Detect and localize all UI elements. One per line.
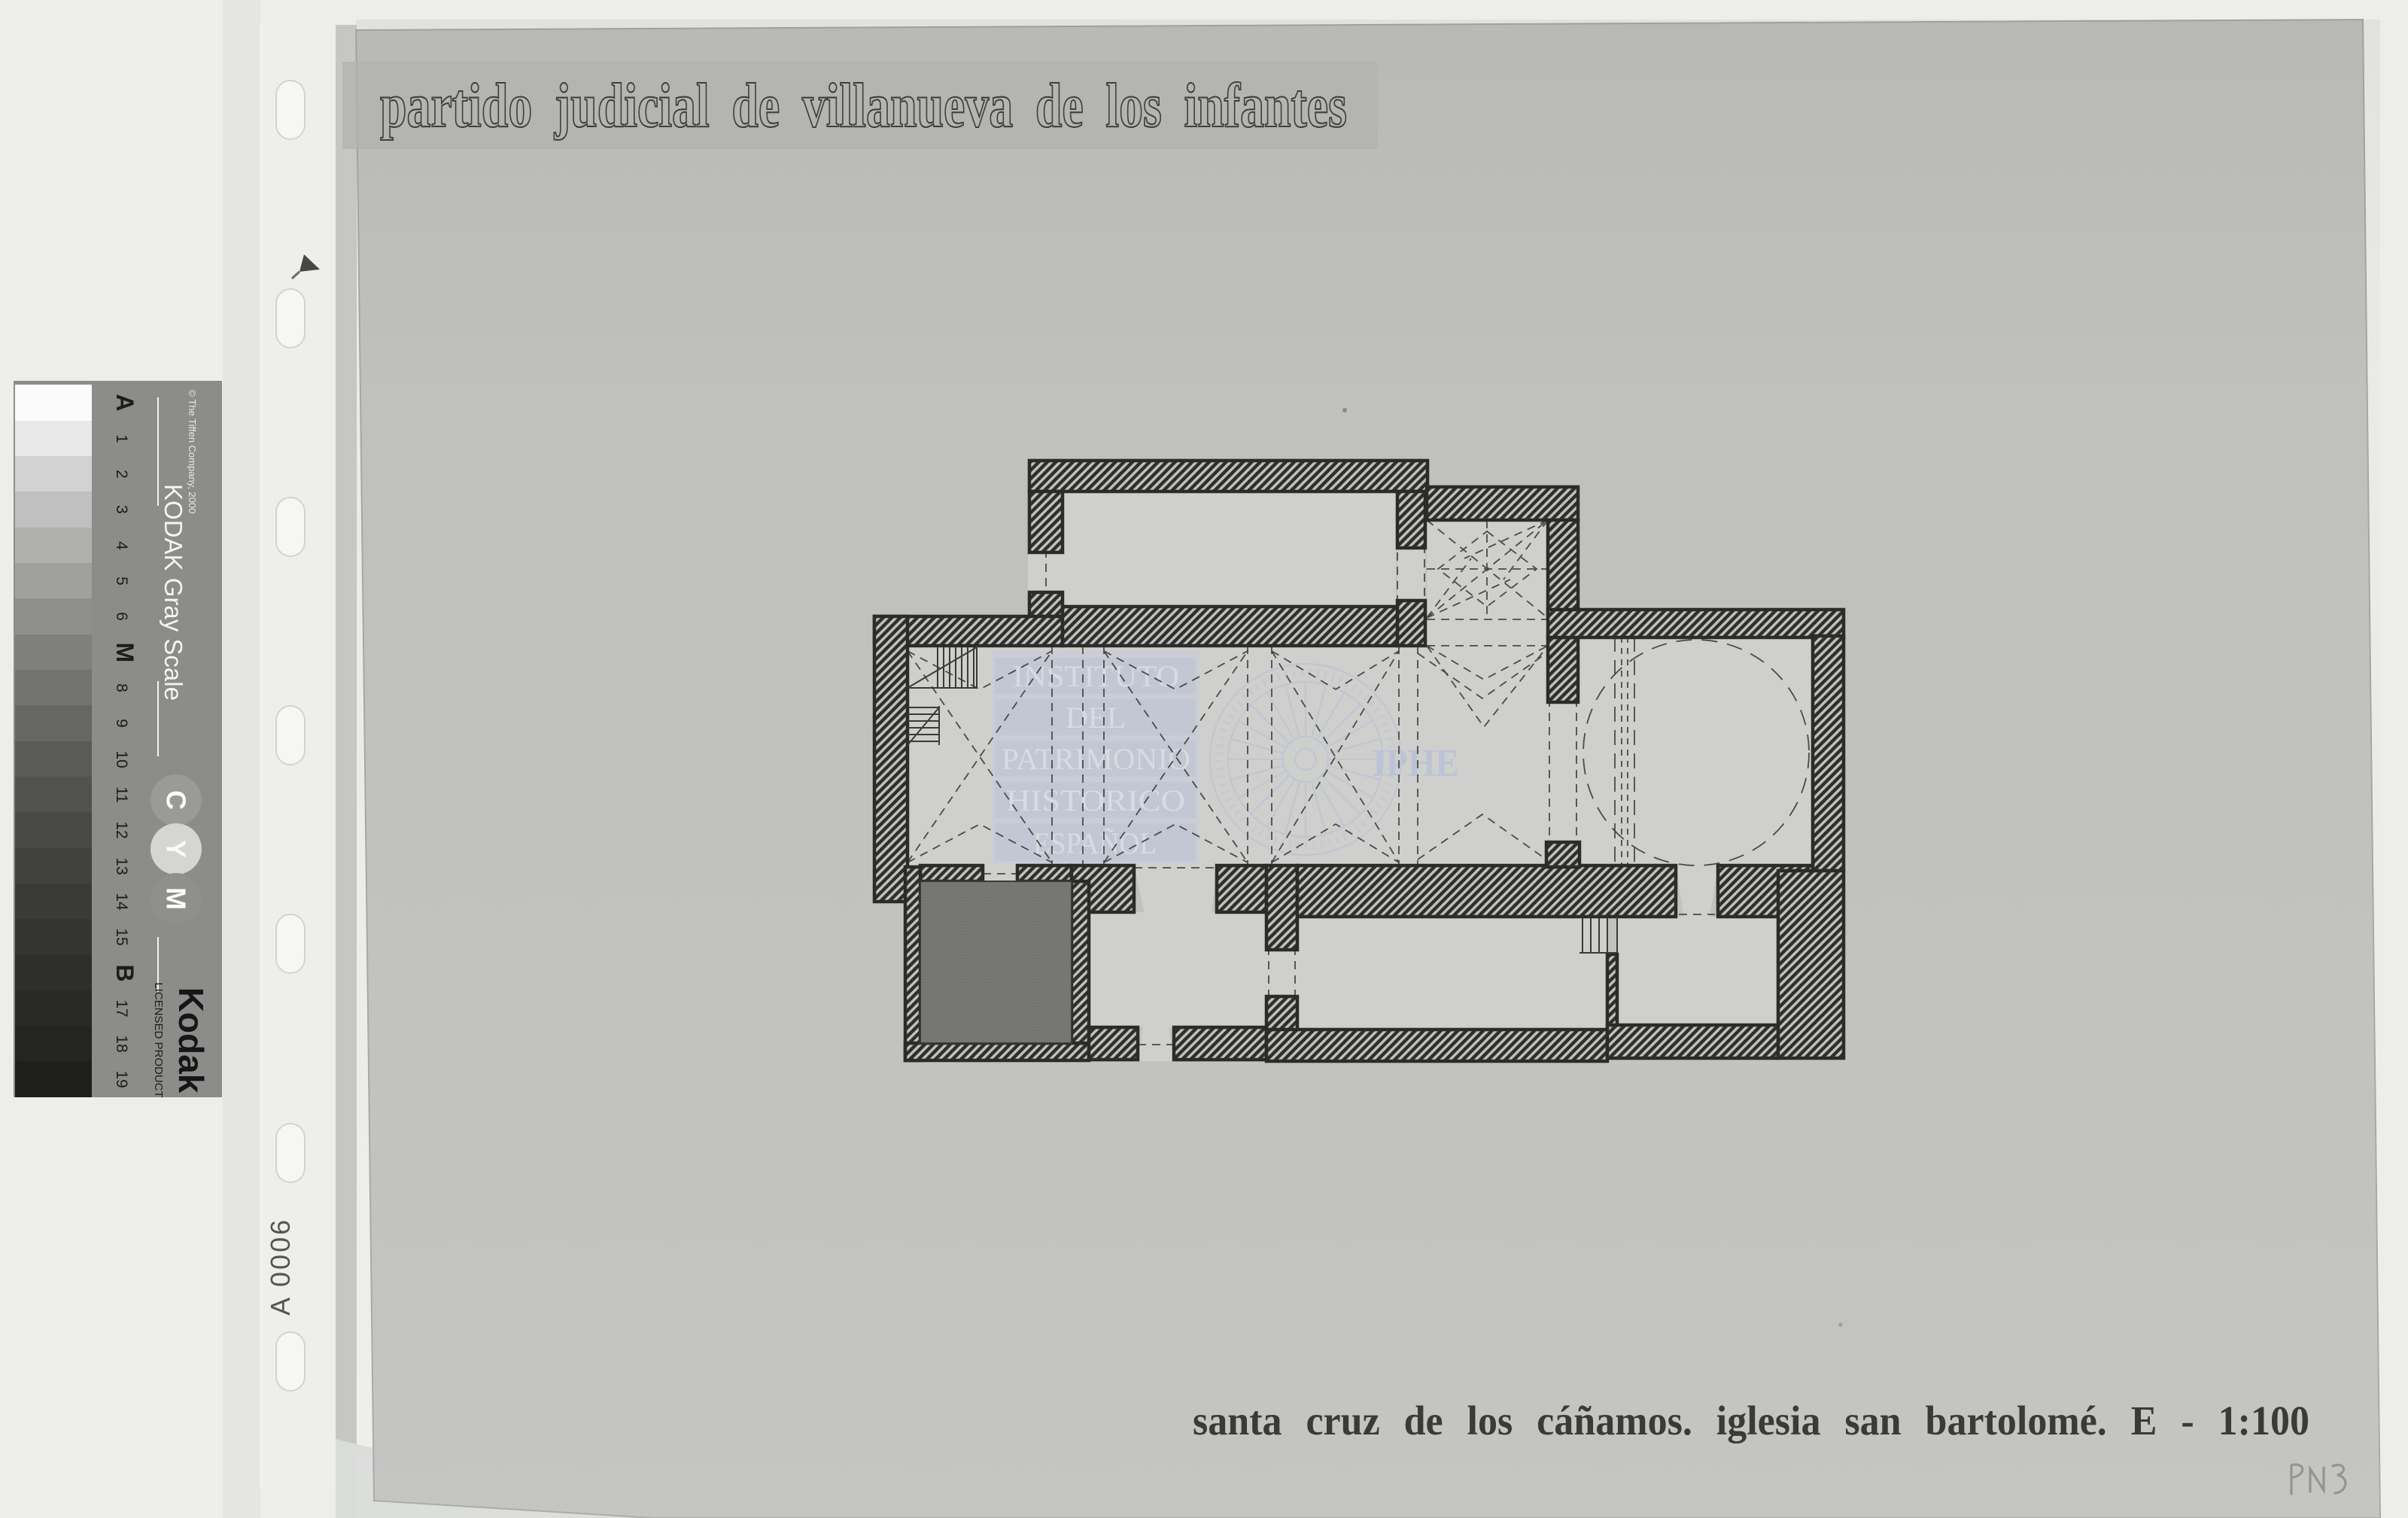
svg-text:11: 11 [113,786,130,803]
svg-text:19: 19 [113,1070,130,1088]
svg-text:3: 3 [113,505,130,514]
svg-text:DEL: DEL [1066,701,1126,735]
svg-text:10: 10 [113,750,130,768]
svg-text:18: 18 [113,1035,130,1052]
svg-text:4: 4 [113,541,130,550]
svg-text:LICENSED PRODUCT: LICENSED PRODUCT [152,982,165,1097]
svg-text:IPHE: IPHE [1373,742,1459,785]
svg-text:13: 13 [113,857,130,875]
svg-text:KODAK Gray Scale: KODAK Gray Scale [160,484,187,701]
svg-text:© The Tiffen Company, 2000: © The Tiffen Company, 2000 [187,390,198,514]
svg-text:C: C [161,790,192,810]
svg-text:B: B [111,964,138,981]
svg-text:12: 12 [113,821,130,838]
svg-text:6: 6 [113,612,130,621]
svg-text:A 0006: A 0006 [265,1218,296,1316]
svg-text:M: M [111,643,138,663]
svg-text:santa cruz de los cáñamos. igl: santa cruz de los cáñamos. iglesia san b… [1193,1398,2309,1443]
svg-text:15: 15 [113,928,130,945]
svg-text:9: 9 [113,719,130,728]
svg-text:HISTORICO: HISTORICO [1006,783,1185,817]
svg-text:PATRIMONIO: PATRIMONIO [1002,742,1190,776]
svg-text:1: 1 [113,434,130,443]
svg-text:Kodak: Kodak [172,987,211,1094]
svg-text:ESPAÑOL: ESPAÑOL [1033,826,1157,860]
svg-text:M: M [161,887,192,910]
svg-text:17: 17 [113,999,130,1017]
svg-text:INSTITUTO: INSTITUTO [1013,659,1179,693]
svg-text:8: 8 [113,683,130,692]
svg-text:Y: Y [161,840,192,858]
svg-text:14: 14 [113,893,130,911]
svg-text:5: 5 [113,576,130,586]
svg-text:2: 2 [113,470,130,479]
svg-text:A: A [111,394,138,411]
svg-text:partido judicial de villanueva: partido judicial de villanueva de los in… [380,71,1347,141]
